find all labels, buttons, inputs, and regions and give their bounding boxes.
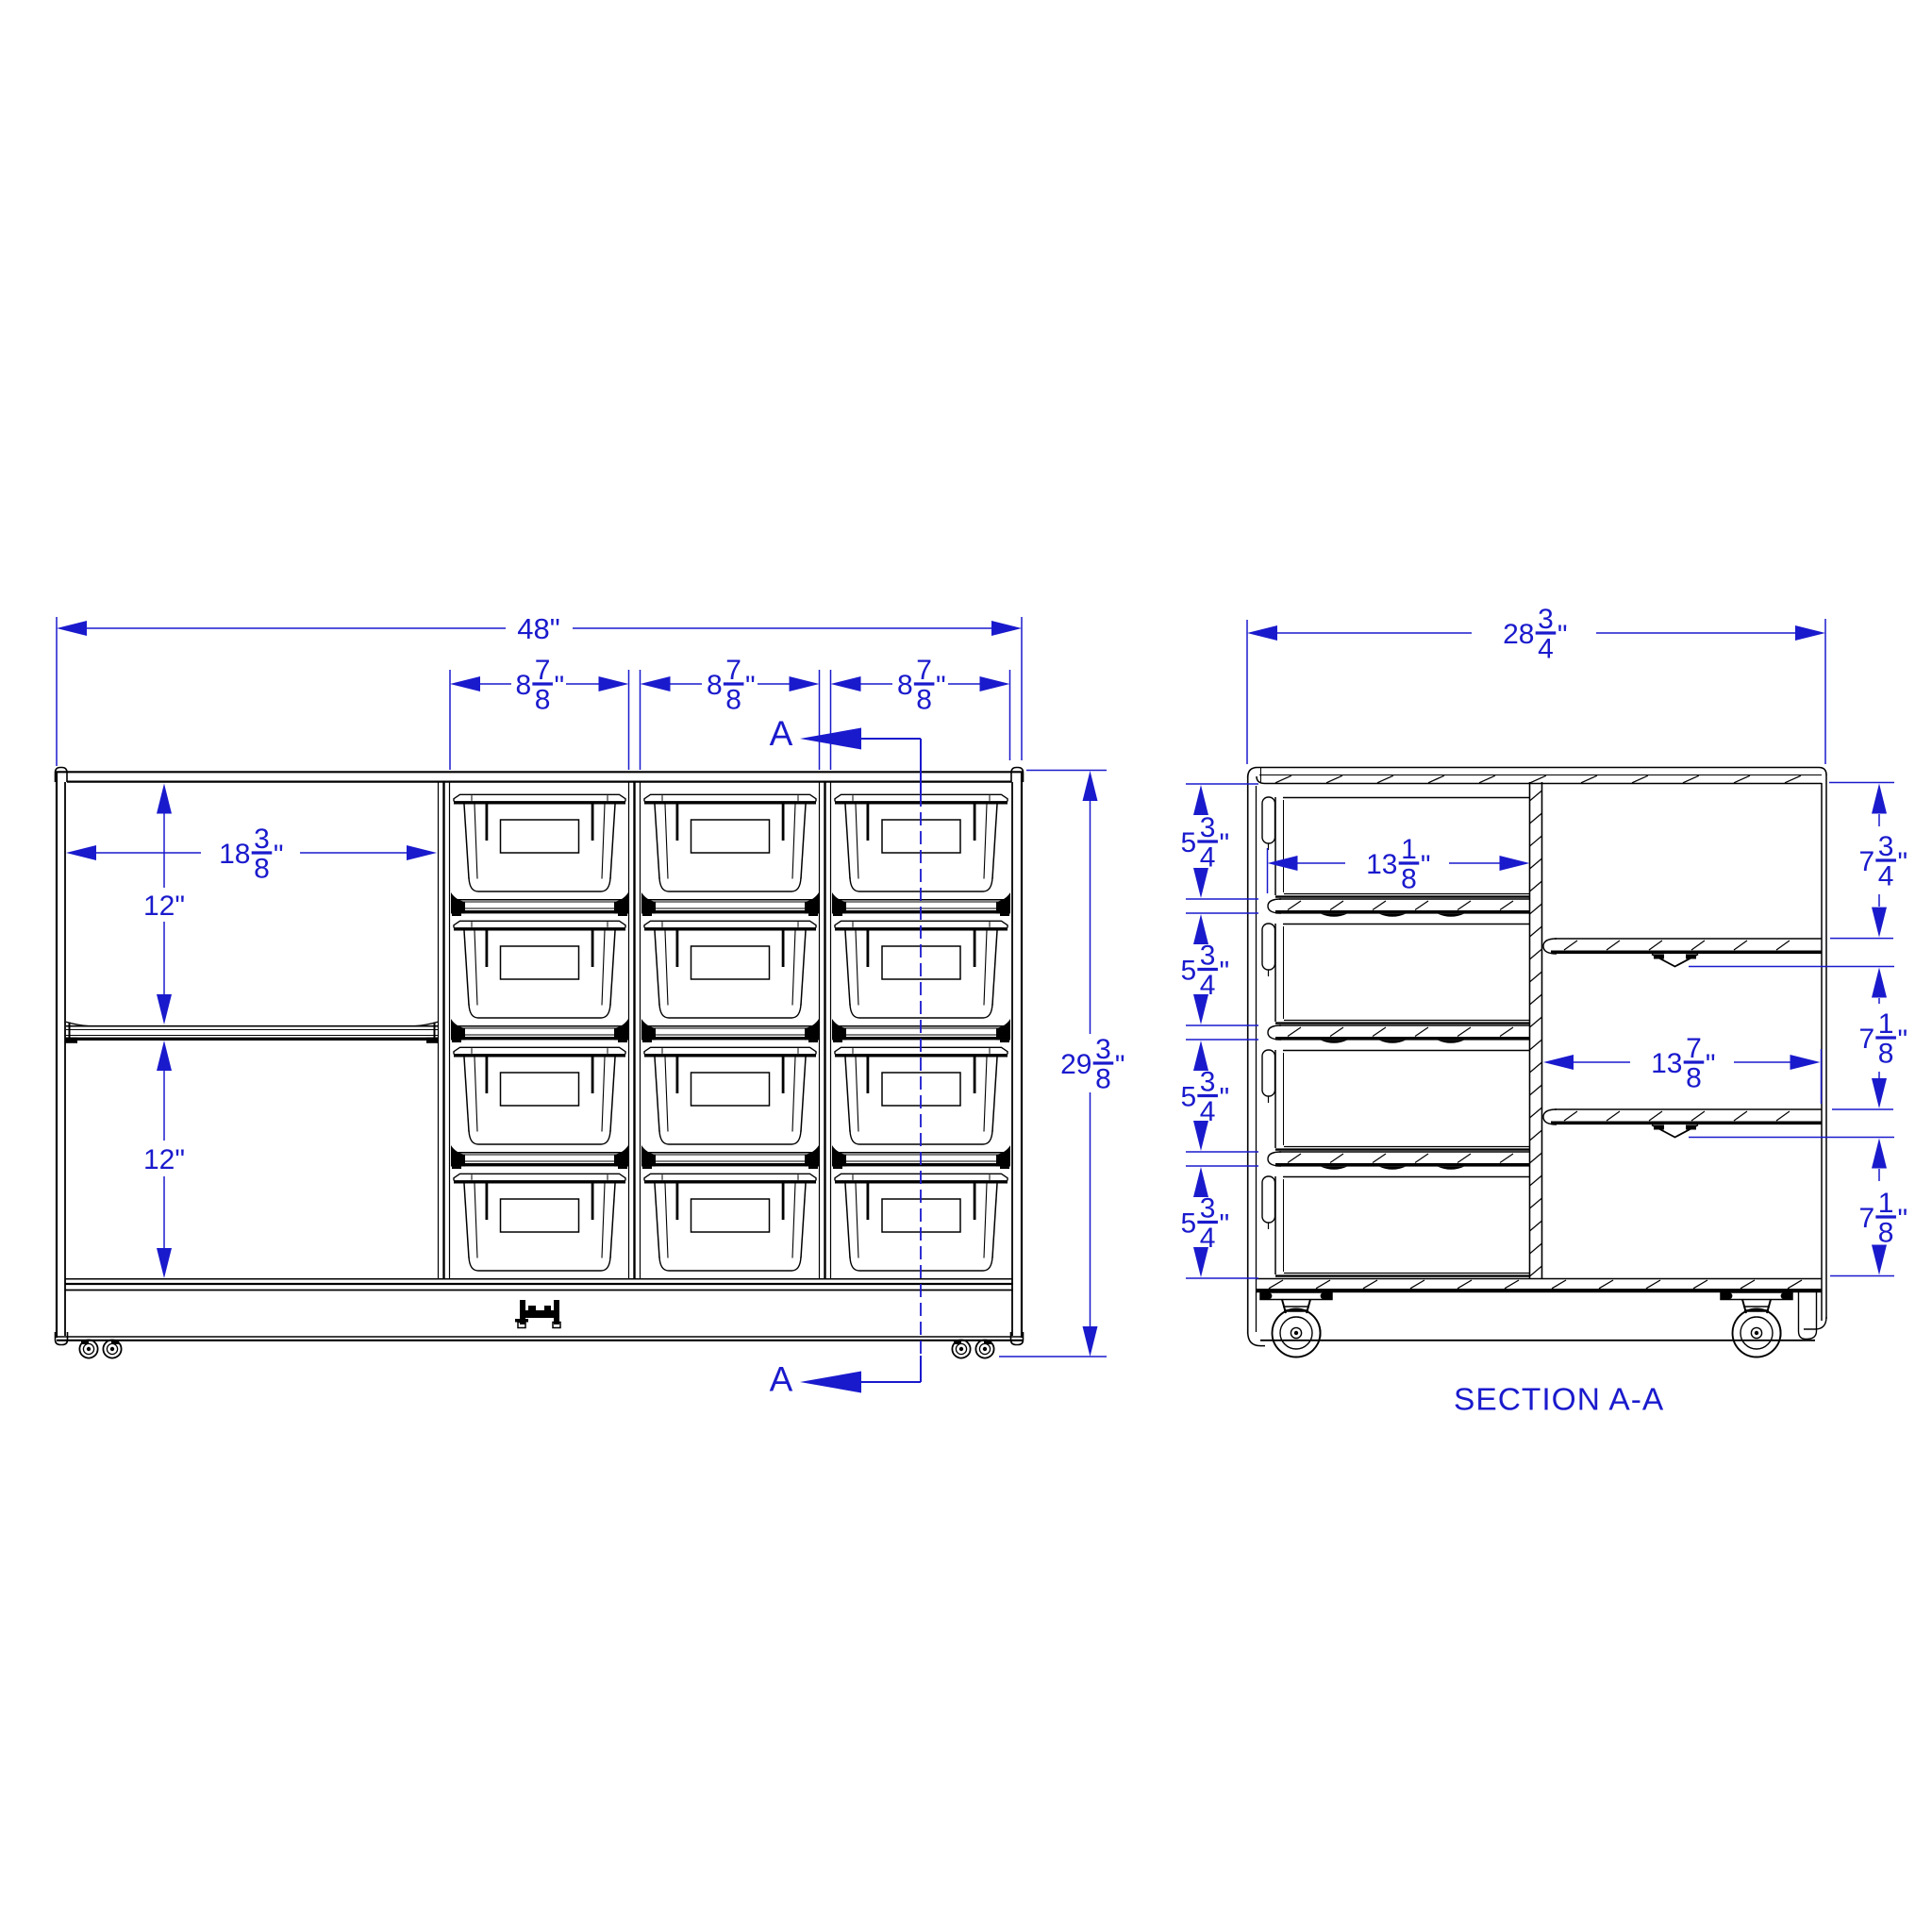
svg-text:": " bbox=[1898, 1024, 1908, 1056]
svg-text:8: 8 bbox=[725, 685, 741, 716]
svg-text:13: 13 bbox=[1651, 1048, 1682, 1079]
svg-text:1: 1 bbox=[1401, 834, 1417, 865]
svg-text:13: 13 bbox=[1366, 849, 1397, 880]
svg-text:": " bbox=[745, 671, 756, 702]
svg-text:": " bbox=[1557, 620, 1568, 651]
svg-text:3: 3 bbox=[254, 824, 270, 855]
svg-text:8: 8 bbox=[897, 670, 913, 701]
svg-text:": " bbox=[555, 671, 565, 702]
svg-text:3: 3 bbox=[1200, 1067, 1216, 1098]
svg-text:": " bbox=[1220, 1209, 1230, 1241]
svg-text:": " bbox=[1706, 1049, 1716, 1080]
svg-text:3: 3 bbox=[1200, 812, 1216, 843]
svg-text:7: 7 bbox=[1858, 1024, 1874, 1055]
svg-text:8: 8 bbox=[1878, 1218, 1894, 1249]
svg-text:8: 8 bbox=[1686, 1063, 1702, 1094]
svg-text:3: 3 bbox=[1200, 941, 1216, 972]
svg-text:4: 4 bbox=[1200, 842, 1216, 874]
svg-text:5: 5 bbox=[1180, 827, 1196, 858]
svg-text:1: 1 bbox=[1878, 1008, 1894, 1040]
svg-text:A: A bbox=[770, 714, 793, 753]
svg-text:28: 28 bbox=[1503, 619, 1534, 650]
svg-text:": " bbox=[1220, 957, 1230, 988]
svg-text:7: 7 bbox=[916, 655, 932, 686]
svg-text:8: 8 bbox=[535, 685, 551, 716]
svg-text:4: 4 bbox=[1200, 1223, 1216, 1254]
svg-text:1: 1 bbox=[1878, 1188, 1894, 1219]
svg-text:12": 12" bbox=[143, 1144, 185, 1175]
svg-text:7: 7 bbox=[1858, 846, 1874, 877]
svg-text:SECTION A-A: SECTION A-A bbox=[1454, 1383, 1664, 1418]
svg-text:": " bbox=[1421, 850, 1431, 881]
svg-text:7: 7 bbox=[725, 655, 741, 686]
svg-text:18: 18 bbox=[219, 839, 250, 870]
svg-text:": " bbox=[1115, 1050, 1125, 1081]
svg-text:": " bbox=[936, 671, 946, 702]
svg-text:": " bbox=[1898, 847, 1908, 878]
svg-text:7: 7 bbox=[535, 655, 551, 686]
svg-text:12": 12" bbox=[143, 891, 185, 922]
svg-text:8: 8 bbox=[254, 854, 270, 885]
svg-text:": " bbox=[1220, 1083, 1230, 1114]
svg-text:A: A bbox=[770, 1360, 793, 1399]
svg-text:7: 7 bbox=[1686, 1033, 1702, 1064]
svg-text:3: 3 bbox=[1538, 604, 1554, 635]
svg-text:8: 8 bbox=[707, 670, 723, 701]
svg-text:": " bbox=[1898, 1204, 1908, 1235]
svg-text:29: 29 bbox=[1060, 1049, 1091, 1080]
svg-text:5: 5 bbox=[1180, 1207, 1196, 1239]
svg-text:": " bbox=[1220, 828, 1230, 859]
svg-text:3: 3 bbox=[1878, 831, 1894, 862]
svg-text:4: 4 bbox=[1538, 634, 1554, 665]
svg-text:4: 4 bbox=[1878, 861, 1894, 892]
svg-text:8: 8 bbox=[1095, 1064, 1111, 1095]
svg-text:5: 5 bbox=[1180, 955, 1196, 986]
svg-text:4: 4 bbox=[1200, 1096, 1216, 1127]
svg-text:48": 48" bbox=[517, 612, 560, 645]
svg-text:8: 8 bbox=[1878, 1039, 1894, 1070]
svg-text:8: 8 bbox=[916, 685, 932, 716]
svg-text:4: 4 bbox=[1200, 970, 1216, 1001]
svg-text:3: 3 bbox=[1200, 1193, 1216, 1224]
svg-text:5: 5 bbox=[1180, 1081, 1196, 1112]
svg-text:8: 8 bbox=[1401, 864, 1417, 895]
svg-text:": " bbox=[274, 840, 284, 871]
svg-text:7: 7 bbox=[1858, 1203, 1874, 1234]
svg-text:3: 3 bbox=[1095, 1034, 1111, 1065]
svg-text:8: 8 bbox=[515, 670, 531, 701]
